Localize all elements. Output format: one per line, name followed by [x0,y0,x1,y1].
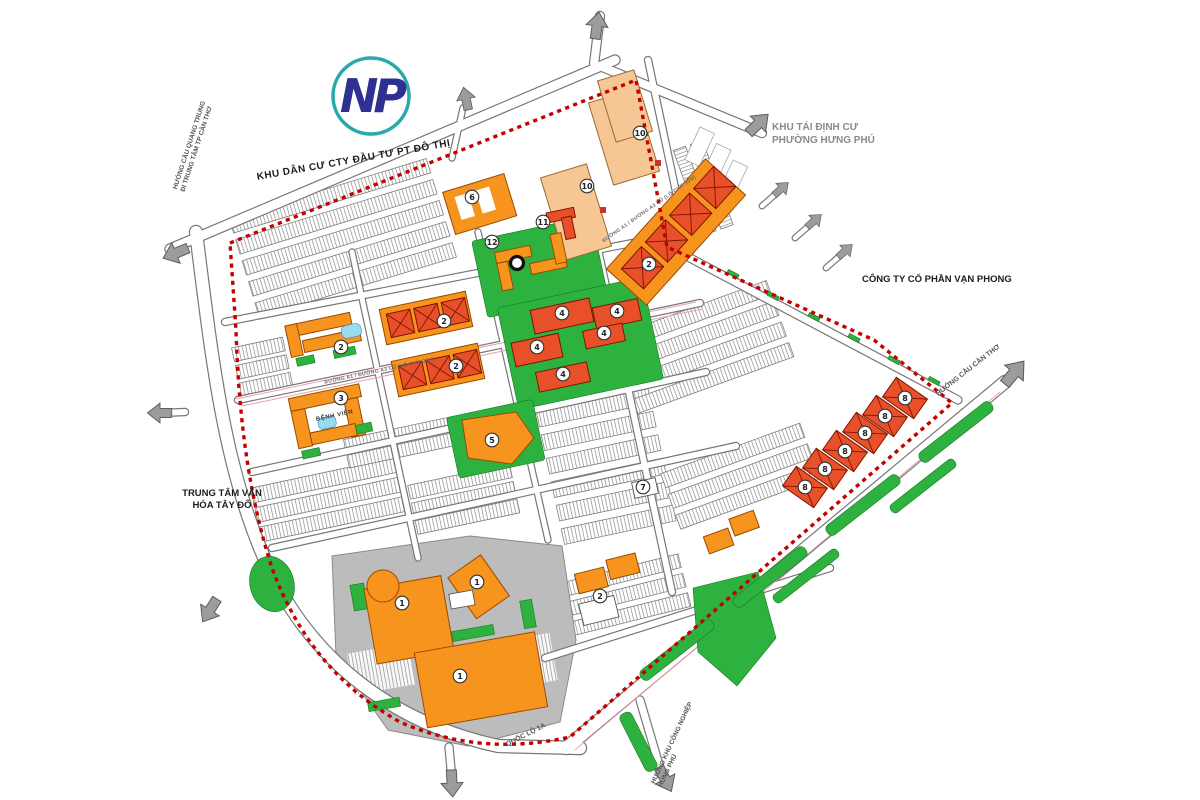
svg-text:2: 2 [646,260,652,269]
svg-text:2: 2 [453,362,459,371]
svg-text:2: 2 [338,343,344,352]
parcel-marker-3: 3 [334,391,348,405]
parcel-marker-8: 8 [838,444,852,458]
road-exit-arrow-icon [147,403,171,423]
svg-text:4: 4 [560,370,566,379]
road-exit-arrow-icon [584,11,610,41]
label-company: CÔNG TY CỔ PHẦN VẠN PHONG [862,274,1012,286]
svg-text:8: 8 [822,465,828,474]
parcel-marker-10: 10 [580,179,594,193]
road-exit-arrow-icon [454,85,477,111]
svg-text:3: 3 [338,394,344,403]
parcel-marker-4: 4 [530,340,544,354]
svg-text:5: 5 [489,436,495,445]
svg-text:8: 8 [902,394,908,403]
parcel-marker-1: 1 [453,669,467,683]
svg-text:1: 1 [399,599,405,608]
svg-text:8: 8 [882,412,888,421]
label-culture-center: TRUNG TÂM VĂN HÓA TÂY ĐÔ [166,488,278,512]
parcel-marker-4: 4 [556,367,570,381]
svg-text:8: 8 [802,483,808,492]
parcel-marker-2: 2 [642,257,656,271]
parcel-marker-2: 2 [593,589,607,603]
parcel-marker-8: 8 [898,391,912,405]
parcel-marker-2: 2 [334,340,348,354]
parcel-marker-8: 8 [878,409,892,423]
svg-text:4: 4 [601,329,607,338]
parcel-marker-5: 5 [485,433,499,447]
svg-text:4: 4 [559,309,565,318]
parcel-marker-2: 2 [437,314,451,328]
road-exit-arrow-icon [440,769,463,797]
parcel-marker-8: 8 [798,480,812,494]
svg-text:1: 1 [474,578,480,587]
parcel-marker-11: 11 [536,215,550,229]
roundabout [511,257,524,270]
parcel-marker-2: 2 [449,359,463,373]
svg-text:7: 7 [640,483,646,492]
parcel-6-building [443,174,517,235]
svg-text:8: 8 [862,429,868,438]
svg-text:4: 4 [534,343,540,352]
svg-text:11: 11 [537,218,549,227]
parcel-marker-7: 7 [636,480,650,494]
np-logo-text: NP [340,69,407,123]
svg-text:6: 6 [469,193,475,202]
parcel-marker-8: 8 [858,426,872,440]
site-plan-canvas: ĐƯỜNG A1 / ĐƯỜNG A3 CŨ (LỘ GIỚI 30M) ĐƯỜ… [0,0,1200,800]
rowhouse-cluster [391,343,485,397]
parcel-marker-4: 4 [610,304,624,318]
svg-text:4: 4 [614,307,620,316]
dome [367,570,399,602]
svg-text:8: 8 [842,447,848,456]
parcel-marker-4: 4 [555,306,569,320]
parcel-marker-10: 10 [633,126,647,140]
svg-text:10: 10 [581,182,593,191]
rowhouse-cluster [379,291,473,345]
np-logo: NP [333,58,409,134]
road-exit-arrow-icon [193,593,226,628]
parcel-marker-4: 4 [597,326,611,340]
parcel-marker-1: 1 [470,575,484,589]
parcel-marker-8: 8 [818,462,832,476]
svg-text:2: 2 [441,317,447,326]
svg-text:2: 2 [597,592,603,601]
svg-text:10: 10 [634,129,646,138]
parcel-marker-6: 6 [465,190,479,204]
parcel-2-building [285,311,366,367]
label-resettlement: KHU TÁI ĐỊNH CƯ PHƯỜNG HƯNG PHÚ [772,122,875,147]
master-plan-map: ĐƯỜNG A1 / ĐƯỜNG A3 CŨ (LỘ GIỚI 30M) ĐƯỜ… [0,0,1200,800]
svg-text:12: 12 [486,238,497,247]
svg-text:1: 1 [457,672,463,681]
parcel-marker-12: 12 [485,235,499,249]
parcel-marker-1: 1 [395,596,409,610]
